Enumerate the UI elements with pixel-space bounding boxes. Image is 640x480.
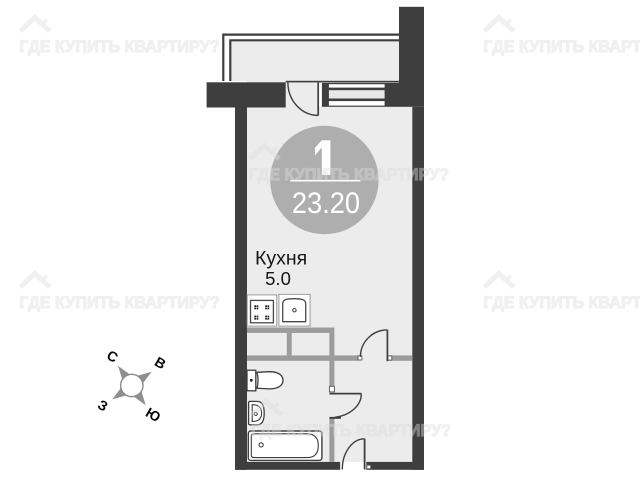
svg-text:Ю: Ю bbox=[143, 404, 164, 425]
svg-text:С: С bbox=[104, 347, 121, 366]
svg-text:В: В bbox=[152, 353, 169, 372]
svg-text:23.20: 23.20 bbox=[292, 187, 360, 220]
svg-text:Кухня: Кухня bbox=[255, 248, 307, 270]
svg-text:З: З bbox=[95, 396, 111, 414]
svg-text:5.0: 5.0 bbox=[265, 268, 291, 289]
